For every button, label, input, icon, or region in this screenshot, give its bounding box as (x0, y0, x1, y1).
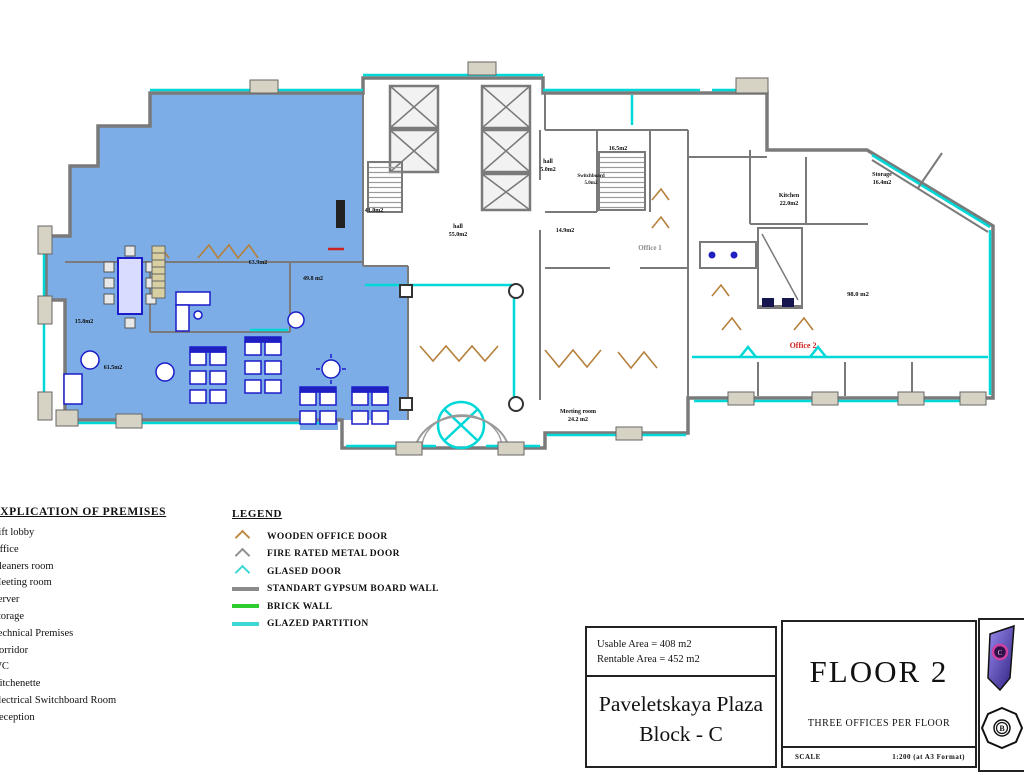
title-block: Usable Area = 408 m2 Rentable Area = 452… (585, 618, 1024, 768)
plan-label: Meeting room (560, 409, 596, 415)
plan-label: Kitchen (779, 193, 800, 199)
legend-symbol-icon (232, 583, 260, 596)
explication-item: Server (0, 592, 252, 609)
block-name: Block - C (587, 719, 775, 749)
legend-list: WOODEN OFFICE DOOR FIRE RATED METAL DOOR… (232, 528, 482, 633)
legend-symbol-icon (232, 618, 260, 631)
plan-label: 98.0 m2 (847, 291, 869, 298)
project-name-box: Paveletskaya Plaza Block - C (587, 677, 775, 749)
project-name: Paveletskaya Plaza (587, 689, 775, 719)
legend-item-label: FIRE RATED METAL DOOR (267, 549, 400, 559)
plan-label: Switchboard (577, 174, 604, 179)
legend-symbol-icon (232, 565, 260, 578)
plan-label: 5.0m2 (585, 181, 598, 186)
explication-item: Electrical Switchboard Room (0, 693, 252, 710)
explication-title: EXPLICATION OF PREMISES (0, 506, 252, 518)
wc-block (700, 228, 802, 308)
floor-plan-drawing: Office 1Office 2hall55.0m241.0m2hall5.0m… (0, 0, 1024, 520)
floor-box: FLOOR 2 THREE OFFICES PER FLOOR SCALE 1:… (781, 620, 977, 768)
explication-item: Storage (0, 609, 252, 626)
plan-label: Office 1 (638, 244, 662, 252)
explication-item: Reception (0, 710, 252, 727)
block-b-letter: B (999, 724, 1005, 733)
usable-area: Usable Area = 408 m2 (597, 637, 771, 652)
plan-label: 24.2 m2 (568, 417, 588, 423)
plan-label: 16.5m2 (609, 146, 628, 152)
scale-value: 1:200 (at A3 Format) (892, 753, 965, 761)
explication-item: Office (0, 542, 252, 559)
key-map: C B (980, 620, 1024, 768)
plan-label: Office 2 (790, 341, 817, 350)
legend-item-label: GLAZED PARTITION (267, 619, 369, 629)
plan-label: 41.0m2 (365, 208, 384, 214)
legend-section: LEGEND WOODEN OFFICE DOOR FIRE RATED MET… (232, 508, 482, 633)
explication-item: Meeting room (0, 575, 252, 592)
explication-list: Lift lobbyOfficeCleaners roomMeeting roo… (0, 525, 252, 727)
plan-label: hall (453, 224, 463, 230)
floor-title: FLOOR 2 (783, 654, 975, 690)
legend-item: FIRE RATED METAL DOOR (232, 546, 482, 564)
plan-label: 14.9m2 (556, 228, 575, 234)
explication-item: WC (0, 659, 252, 676)
legend-title: LEGEND (232, 508, 482, 520)
floor-plan: Office 1Office 2hall55.0m241.0m2hall5.0m… (0, 0, 1024, 520)
legend-item: STANDART GYPSUM BOARD WALL (232, 581, 482, 599)
rentable-area: Rentable Area = 452 m2 (597, 652, 771, 667)
block-c-letter: C (998, 649, 1003, 657)
plan-label: hall (543, 159, 553, 165)
floor-subtitle: THREE OFFICES PER FLOOR (783, 718, 975, 729)
plan-label: 63.9m2 (249, 260, 268, 266)
legend-item-label: WOODEN OFFICE DOOR (267, 532, 388, 542)
plan-label: 15.8m2 (75, 319, 94, 325)
entrance (415, 402, 509, 448)
legend-item: GLASED DOOR (232, 563, 482, 581)
elevator-shafts (390, 86, 530, 210)
explication-section: EXPLICATION OF PREMISES Lift lobbyOffice… (0, 506, 252, 727)
explication-item: Corridor (0, 643, 252, 660)
legend-item-label: BRICK WALL (267, 602, 332, 612)
explication-item: Technical Premises (0, 626, 252, 643)
explication-item: Lift lobby (0, 525, 252, 542)
legend-item-label: GLASED DOOR (267, 567, 341, 577)
plan-label: 22.0m2 (780, 201, 799, 207)
legend-item: GLAZED PARTITION (232, 616, 482, 634)
columns (400, 284, 523, 411)
legend-symbol-icon (232, 600, 260, 613)
plan-label: 16.4m2 (873, 180, 892, 186)
legend-item: WOODEN OFFICE DOOR (232, 528, 482, 546)
project-info-box: Usable Area = 408 m2 Rentable Area = 452… (585, 626, 777, 768)
plan-label: Storage (872, 172, 892, 178)
legend-item-label: STANDART GYPSUM BOARD WALL (267, 584, 439, 594)
area-summary: Usable Area = 408 m2 Rentable Area = 452… (587, 628, 775, 677)
key-map-box: C B (978, 618, 1024, 772)
explication-item: Cleaners room (0, 559, 252, 576)
explication-item: Kitchenette (0, 676, 252, 693)
plan-label: 5.0m2 (540, 167, 556, 173)
plan-label: 49.8 m2 (303, 276, 323, 282)
legend-item: BRICK WALL (232, 598, 482, 616)
scale-row: SCALE 1:200 (at A3 Format) (783, 746, 975, 766)
legend-symbol-icon (232, 530, 260, 543)
scale-label: SCALE (795, 753, 821, 761)
legend-symbol-icon (232, 548, 260, 561)
plan-label: 55.0m2 (449, 232, 468, 238)
plan-label: 61.5m2 (104, 365, 123, 371)
